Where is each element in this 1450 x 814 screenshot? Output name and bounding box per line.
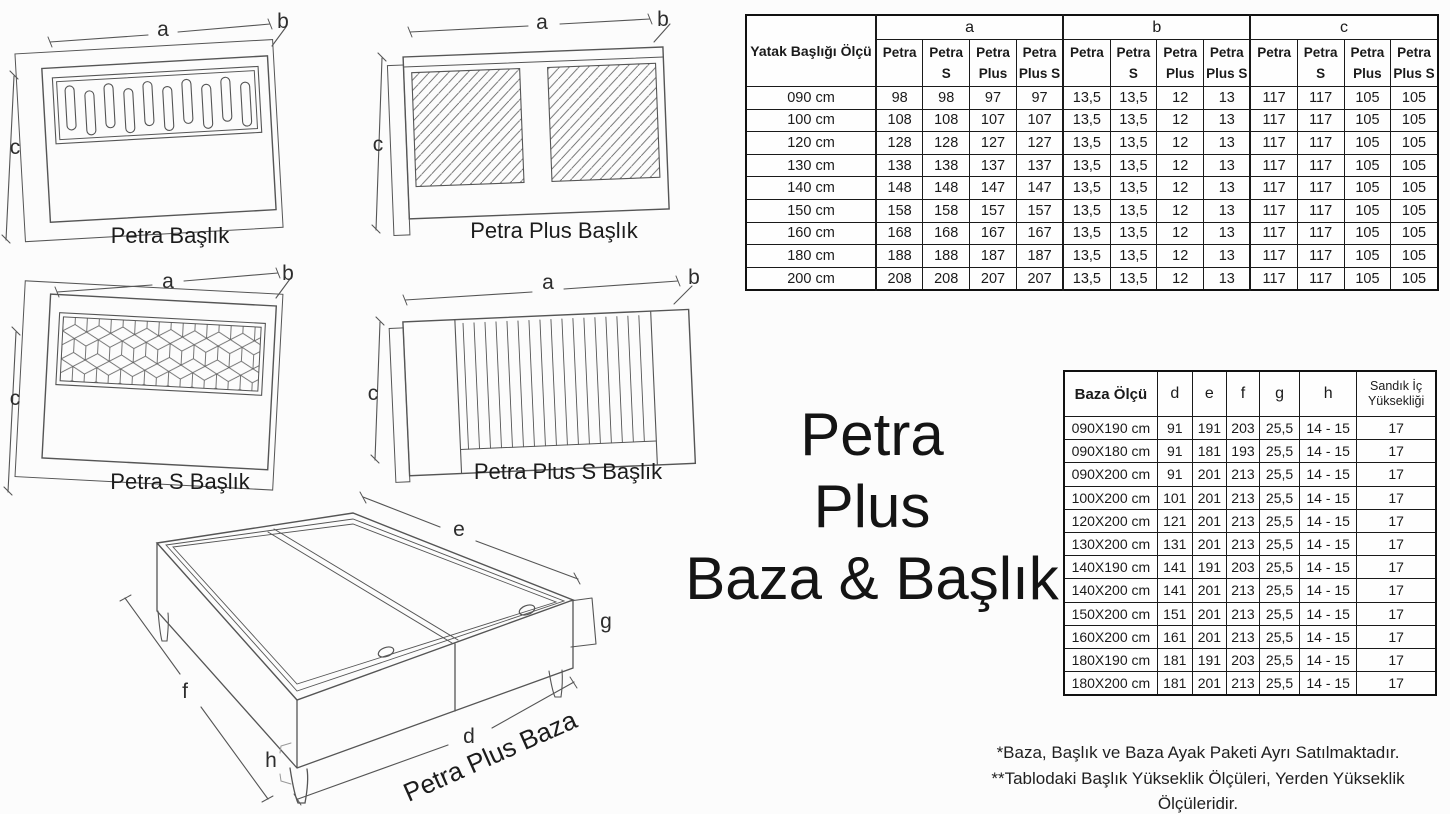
- column-header-line: Plus: [1157, 63, 1203, 84]
- column-header: PetraPlus: [1344, 40, 1391, 87]
- value-cell: 105: [1391, 199, 1438, 222]
- size-cell: 160 cm: [746, 222, 876, 245]
- value-cell: 25,5: [1260, 532, 1300, 555]
- value-cell: 13,5: [1063, 245, 1110, 268]
- value-cell: 25,5: [1260, 625, 1300, 648]
- value-cell: 213: [1226, 463, 1259, 486]
- value-cell: 13,5: [1063, 87, 1110, 110]
- value-cell: 117: [1297, 245, 1344, 268]
- value-cell: 105: [1391, 132, 1438, 155]
- value-cell: 148: [923, 177, 970, 200]
- value-cell: 105: [1344, 132, 1391, 155]
- value-cell: 17: [1357, 486, 1436, 509]
- value-cell: 13: [1204, 199, 1251, 222]
- value-cell: 12: [1157, 109, 1204, 132]
- dim-label-f-baza: f: [182, 681, 188, 703]
- value-cell: 13: [1204, 109, 1251, 132]
- petra-baslik-drawing: [2, 19, 286, 243]
- value-cell: 13,5: [1063, 154, 1110, 177]
- value-cell: 13,5: [1063, 132, 1110, 155]
- size-cell: 160X200 cm: [1064, 625, 1157, 648]
- value-cell: 167: [1016, 222, 1063, 245]
- petra-plus-baslik-drawing: [372, 14, 670, 235]
- value-cell: 25,5: [1260, 648, 1300, 671]
- baza-column-header: f: [1226, 371, 1259, 417]
- baza-row: 150X200 cm15120121325,514 - 1517: [1064, 602, 1436, 625]
- value-cell: 201: [1192, 602, 1226, 625]
- product-title-line2: Plus: [685, 471, 1059, 543]
- value-cell: 25,5: [1260, 579, 1300, 602]
- dim-label-c-petra-s: c: [10, 388, 21, 410]
- value-cell: 138: [923, 154, 970, 177]
- value-cell: 25,5: [1260, 417, 1300, 440]
- value-cell: 105: [1391, 154, 1438, 177]
- value-cell: 188: [876, 245, 923, 268]
- value-cell: 105: [1391, 267, 1438, 290]
- value-cell: 17: [1357, 556, 1436, 579]
- value-cell: 17: [1357, 509, 1436, 532]
- value-cell: 158: [923, 199, 970, 222]
- group-header: a: [876, 15, 1063, 40]
- dim-label-b-petra-plus-s: b: [688, 267, 700, 289]
- column-header-line: Petra: [970, 42, 1016, 63]
- value-cell: 105: [1344, 199, 1391, 222]
- value-cell: 105: [1391, 109, 1438, 132]
- value-cell: 117: [1250, 132, 1297, 155]
- value-cell: 191: [1192, 556, 1226, 579]
- headboard-row: 150 cm15815815715713,513,512131171171051…: [746, 199, 1438, 222]
- baza-row: 130X200 cm13120121325,514 - 1517: [1064, 532, 1436, 555]
- baza-row: 140X190 cm14119120325,514 - 1517: [1064, 556, 1436, 579]
- value-cell: 213: [1226, 672, 1259, 696]
- value-cell: 107: [970, 109, 1017, 132]
- baza-column-header: g: [1260, 371, 1300, 417]
- value-cell: 12: [1157, 87, 1204, 110]
- value-cell: 14 - 15: [1300, 648, 1357, 671]
- value-cell: 181: [1192, 440, 1226, 463]
- value-cell: 117: [1250, 222, 1297, 245]
- headboard-row: 200 cm20820820720713,513,512131171171051…: [746, 267, 1438, 290]
- value-cell: 13,5: [1110, 199, 1157, 222]
- footnote-2: **Tablodaki Başlık Yükseklik Ölçüleri, Y…: [952, 766, 1444, 814]
- column-header-line: S: [923, 63, 969, 84]
- petra-plus-baza-drawing: [120, 492, 596, 805]
- column-header: PetraPlus S: [1391, 40, 1438, 87]
- value-cell: 203: [1226, 648, 1259, 671]
- baza-column-header: Baza Ölçü: [1064, 371, 1157, 417]
- dim-label-a-petra-plus: a: [536, 12, 548, 34]
- value-cell: 13: [1204, 154, 1251, 177]
- value-cell: 12: [1157, 199, 1204, 222]
- value-cell: 168: [923, 222, 970, 245]
- size-cell: 140 cm: [746, 177, 876, 200]
- value-cell: 138: [876, 154, 923, 177]
- column-header-line: Petra: [1204, 42, 1249, 63]
- headboard-row: 130 cm13813813713713,513,512131171171051…: [746, 154, 1438, 177]
- column-header-line: Petra: [923, 42, 969, 63]
- dim-label-b-petra-s: b: [282, 263, 294, 285]
- value-cell: 117: [1250, 109, 1297, 132]
- value-cell: 157: [1016, 199, 1063, 222]
- value-cell: 13,5: [1063, 267, 1110, 290]
- baza-row: 180X190 cm18119120325,514 - 1517: [1064, 648, 1436, 671]
- dim-label-a-petra-s: a: [162, 271, 174, 293]
- column-header-line: Petra: [1251, 42, 1296, 63]
- size-cell: 100 cm: [746, 109, 876, 132]
- value-cell: 207: [1016, 267, 1063, 290]
- column-header: Petra: [1063, 40, 1110, 87]
- value-cell: 105: [1391, 222, 1438, 245]
- value-cell: 25,5: [1260, 486, 1300, 509]
- value-cell: 13: [1204, 87, 1251, 110]
- value-cell: 193: [1226, 440, 1259, 463]
- value-cell: 13: [1204, 177, 1251, 200]
- value-cell: 91: [1157, 440, 1192, 463]
- baza-row: 140X200 cm14120121325,514 - 1517: [1064, 579, 1436, 602]
- dim-label-a-petra-plus-s: a: [542, 272, 554, 294]
- column-header: PetraPlus: [970, 40, 1017, 87]
- value-cell: 13,5: [1063, 109, 1110, 132]
- value-cell: 157: [970, 199, 1017, 222]
- product-title: Petra Plus Baza & Başlık: [685, 399, 1059, 615]
- value-cell: 17: [1357, 672, 1436, 696]
- value-cell: 191: [1192, 417, 1226, 440]
- value-cell: 12: [1157, 245, 1204, 268]
- value-cell: 148: [876, 177, 923, 200]
- size-cell: 090X180 cm: [1064, 440, 1157, 463]
- value-cell: 14 - 15: [1300, 625, 1357, 648]
- value-cell: 97: [970, 87, 1017, 110]
- column-header: Petra: [1250, 40, 1297, 87]
- size-cell: 140X200 cm: [1064, 579, 1157, 602]
- value-cell: 213: [1226, 509, 1259, 532]
- value-cell: 147: [970, 177, 1017, 200]
- value-cell: 13,5: [1063, 222, 1110, 245]
- spec-sheet: a b c Petra Başlık a b c Petra Plus Başl…: [0, 0, 1450, 814]
- value-cell: 13,5: [1063, 177, 1110, 200]
- value-cell: 14 - 15: [1300, 417, 1357, 440]
- value-cell: 17: [1357, 625, 1436, 648]
- value-cell: 117: [1250, 177, 1297, 200]
- value-cell: 14 - 15: [1300, 486, 1357, 509]
- value-cell: 187: [970, 245, 1017, 268]
- value-cell: 208: [923, 267, 970, 290]
- value-cell: 105: [1344, 245, 1391, 268]
- value-cell: 188: [923, 245, 970, 268]
- dim-label-d-baza: d: [463, 726, 475, 748]
- baza-column-header: Sandık İç Yüksekliği: [1357, 371, 1436, 417]
- value-cell: 13,5: [1110, 132, 1157, 155]
- size-cell: 200 cm: [746, 267, 876, 290]
- value-cell: 105: [1391, 87, 1438, 110]
- column-header-line: [877, 63, 922, 84]
- value-cell: 13,5: [1110, 267, 1157, 290]
- value-cell: 13: [1204, 267, 1251, 290]
- column-header-line: Plus S: [1204, 63, 1249, 84]
- value-cell: 98: [876, 87, 923, 110]
- value-cell: 17: [1357, 579, 1436, 602]
- value-cell: 161: [1157, 625, 1192, 648]
- baza-column-header: e: [1192, 371, 1226, 417]
- headboard-row: 180 cm18818818718713,513,512131171171051…: [746, 245, 1438, 268]
- value-cell: 14 - 15: [1300, 672, 1357, 696]
- size-cell: 100X200 cm: [1064, 486, 1157, 509]
- value-cell: 108: [876, 109, 923, 132]
- size-cell: 140X190 cm: [1064, 556, 1157, 579]
- value-cell: 91: [1157, 417, 1192, 440]
- value-cell: 117: [1297, 177, 1344, 200]
- headboard-row: 090 cm9898979713,513,51213117117105105: [746, 87, 1438, 110]
- value-cell: 105: [1391, 245, 1438, 268]
- value-cell: 201: [1192, 463, 1226, 486]
- value-cell: 128: [923, 132, 970, 155]
- value-cell: 25,5: [1260, 672, 1300, 696]
- column-header-line: Petra: [1157, 42, 1203, 63]
- group-header: b: [1063, 15, 1250, 40]
- footnote-1: *Baza, Başlık ve Baza Ayak Paketi Ayrı S…: [952, 740, 1444, 766]
- value-cell: 13,5: [1110, 222, 1157, 245]
- value-cell: 25,5: [1260, 556, 1300, 579]
- value-cell: 201: [1192, 532, 1226, 555]
- value-cell: 213: [1226, 532, 1259, 555]
- value-cell: 137: [1016, 154, 1063, 177]
- value-cell: 121: [1157, 509, 1192, 532]
- dim-label-c-petra-plus: c: [373, 134, 384, 156]
- value-cell: 17: [1357, 532, 1436, 555]
- value-cell: 25,5: [1260, 602, 1300, 625]
- value-cell: 117: [1297, 109, 1344, 132]
- value-cell: 12: [1157, 132, 1204, 155]
- value-cell: 12: [1157, 177, 1204, 200]
- value-cell: 158: [876, 199, 923, 222]
- column-header-line: Plus: [1345, 63, 1391, 84]
- value-cell: 13,5: [1110, 87, 1157, 110]
- value-cell: 168: [876, 222, 923, 245]
- value-cell: 127: [1016, 132, 1063, 155]
- size-cell: 120X200 cm: [1064, 509, 1157, 532]
- value-cell: 17: [1357, 463, 1436, 486]
- value-cell: 203: [1226, 556, 1259, 579]
- value-cell: 117: [1297, 199, 1344, 222]
- column-header-line: Petra: [877, 42, 922, 63]
- product-title-line1: Petra: [685, 399, 1059, 471]
- size-cell: 180X200 cm: [1064, 672, 1157, 696]
- column-header-line: Petra: [1017, 42, 1062, 63]
- dim-label-g-baza: g: [600, 611, 612, 633]
- size-cell: 130 cm: [746, 154, 876, 177]
- dim-label-c-petra: c: [10, 137, 21, 159]
- value-cell: 13: [1204, 245, 1251, 268]
- column-header-line: [1251, 63, 1296, 84]
- baza-row: 180X200 cm18120121325,514 - 1517: [1064, 672, 1436, 696]
- corner-header: Yatak Başlığı Ölçü: [746, 15, 876, 87]
- caption-petra-plus-s-baslik: Petra Plus S Başlık: [474, 460, 662, 484]
- value-cell: 105: [1344, 267, 1391, 290]
- caption-petra-s-baslik: Petra S Başlık: [110, 470, 249, 494]
- value-cell: 13: [1204, 132, 1251, 155]
- column-header-line: Petra: [1111, 42, 1157, 63]
- dim-label-b-petra: b: [277, 11, 289, 33]
- value-cell: 17: [1357, 417, 1436, 440]
- value-cell: 127: [970, 132, 1017, 155]
- headboard-row: 120 cm12812812712713,513,512131171171051…: [746, 132, 1438, 155]
- value-cell: 151: [1157, 602, 1192, 625]
- value-cell: 12: [1157, 154, 1204, 177]
- value-cell: 201: [1192, 486, 1226, 509]
- column-header-line: Plus: [970, 63, 1016, 84]
- column-header-line: Petra: [1345, 42, 1391, 63]
- size-cell: 180 cm: [746, 245, 876, 268]
- value-cell: 181: [1157, 672, 1192, 696]
- value-cell: 213: [1226, 579, 1259, 602]
- baza-row: 160X200 cm16120121325,514 - 1517: [1064, 625, 1436, 648]
- value-cell: 137: [970, 154, 1017, 177]
- value-cell: 207: [970, 267, 1017, 290]
- dim-label-c-petra-plus-s: c: [368, 383, 379, 405]
- value-cell: 17: [1357, 648, 1436, 671]
- column-header-line: Plus S: [1017, 63, 1062, 84]
- value-cell: 13,5: [1110, 109, 1157, 132]
- column-header: PetraS: [923, 40, 970, 87]
- value-cell: 107: [1016, 109, 1063, 132]
- column-header: PetraPlus S: [1016, 40, 1063, 87]
- value-cell: 131: [1157, 532, 1192, 555]
- baza-column-header: h: [1300, 371, 1357, 417]
- value-cell: 105: [1344, 222, 1391, 245]
- baza-row: 120X200 cm12120121325,514 - 1517: [1064, 509, 1436, 532]
- value-cell: 117: [1297, 132, 1344, 155]
- value-cell: 17: [1357, 440, 1436, 463]
- size-cell: 090X190 cm: [1064, 417, 1157, 440]
- dim-label-b-petra-plus: b: [657, 9, 669, 31]
- value-cell: 105: [1344, 154, 1391, 177]
- value-cell: 117: [1297, 222, 1344, 245]
- value-cell: 14 - 15: [1300, 579, 1357, 602]
- column-header: PetraS: [1297, 40, 1344, 87]
- baza-row: 100X200 cm10120121325,514 - 1517: [1064, 486, 1436, 509]
- column-header: PetraPlus: [1157, 40, 1204, 87]
- value-cell: 105: [1391, 177, 1438, 200]
- value-cell: 201: [1192, 672, 1226, 696]
- value-cell: 14 - 15: [1300, 602, 1357, 625]
- value-cell: 117: [1250, 245, 1297, 268]
- value-cell: 14 - 15: [1300, 463, 1357, 486]
- value-cell: 13: [1204, 222, 1251, 245]
- value-cell: 213: [1226, 486, 1259, 509]
- value-cell: 14 - 15: [1300, 440, 1357, 463]
- value-cell: 12: [1157, 267, 1204, 290]
- value-cell: 101: [1157, 486, 1192, 509]
- baza-table: Baza ÖlçüdefghSandık İç Yüksekliği090X19…: [1063, 370, 1437, 696]
- headboard-row: 100 cm10810810710713,513,512131171171051…: [746, 109, 1438, 132]
- column-header-line: S: [1111, 63, 1157, 84]
- group-header: c: [1250, 15, 1437, 40]
- headboard-table: Yatak Başlığı ÖlçüabcPetraPetraSPetraPlu…: [745, 14, 1439, 291]
- value-cell: 12: [1157, 222, 1204, 245]
- size-cell: 150 cm: [746, 199, 876, 222]
- petra-plus-s-baslik-drawing: [371, 276, 696, 482]
- column-header-line: [1064, 63, 1109, 84]
- column-header: Petra: [876, 40, 923, 87]
- value-cell: 17: [1357, 602, 1436, 625]
- headboard-row: 160 cm16816816716713,513,512131171171051…: [746, 222, 1438, 245]
- value-cell: 141: [1157, 556, 1192, 579]
- value-cell: 213: [1226, 625, 1259, 648]
- column-header: PetraPlus S: [1204, 40, 1251, 87]
- size-cell: 090X200 cm: [1064, 463, 1157, 486]
- value-cell: 117: [1297, 87, 1344, 110]
- column-header-line: Petra: [1298, 42, 1344, 63]
- value-cell: 203: [1226, 417, 1259, 440]
- value-cell: 97: [1016, 87, 1063, 110]
- value-cell: 13,5: [1110, 245, 1157, 268]
- value-cell: 25,5: [1260, 509, 1300, 532]
- baza-row: 090X190 cm9119120325,514 - 1517: [1064, 417, 1436, 440]
- value-cell: 13,5: [1110, 154, 1157, 177]
- value-cell: 208: [876, 267, 923, 290]
- value-cell: 105: [1344, 87, 1391, 110]
- value-cell: 98: [923, 87, 970, 110]
- value-cell: 14 - 15: [1300, 532, 1357, 555]
- value-cell: 181: [1157, 648, 1192, 671]
- value-cell: 201: [1192, 579, 1226, 602]
- column-header: PetraS: [1110, 40, 1157, 87]
- value-cell: 117: [1250, 199, 1297, 222]
- value-cell: 117: [1250, 267, 1297, 290]
- value-cell: 108: [923, 109, 970, 132]
- baza-row: 090X200 cm9120121325,514 - 1517: [1064, 463, 1436, 486]
- value-cell: 117: [1297, 154, 1344, 177]
- column-header-line: S: [1298, 63, 1344, 84]
- value-cell: 13,5: [1110, 177, 1157, 200]
- footnotes: *Baza, Başlık ve Baza Ayak Paketi Ayrı S…: [952, 740, 1444, 814]
- size-cell: 090 cm: [746, 87, 876, 110]
- value-cell: 25,5: [1260, 463, 1300, 486]
- baza-row: 090X180 cm9118119325,514 - 1517: [1064, 440, 1436, 463]
- caption-petra-baslik: Petra Başlık: [111, 224, 230, 248]
- size-cell: 180X190 cm: [1064, 648, 1157, 671]
- value-cell: 167: [970, 222, 1017, 245]
- caption-petra-plus-baslik: Petra Plus Başlık: [470, 219, 638, 243]
- column-header-line: Petra: [1064, 42, 1109, 63]
- headboard-row: 140 cm14814814714713,513,512131171171051…: [746, 177, 1438, 200]
- value-cell: 117: [1297, 267, 1344, 290]
- column-header-line: Petra: [1391, 42, 1436, 63]
- value-cell: 141: [1157, 579, 1192, 602]
- value-cell: 117: [1250, 87, 1297, 110]
- dim-label-a-petra: a: [157, 19, 169, 41]
- value-cell: 105: [1344, 177, 1391, 200]
- petra-s-baslik-drawing: [4, 268, 290, 495]
- value-cell: 117: [1250, 154, 1297, 177]
- value-cell: 14 - 15: [1300, 509, 1357, 532]
- dim-label-h-baza: h: [265, 750, 277, 772]
- value-cell: 105: [1344, 109, 1391, 132]
- value-cell: 213: [1226, 602, 1259, 625]
- value-cell: 201: [1192, 625, 1226, 648]
- product-title-line3: Baza & Başlık: [685, 543, 1059, 615]
- size-cell: 130X200 cm: [1064, 532, 1157, 555]
- value-cell: 13,5: [1063, 199, 1110, 222]
- value-cell: 187: [1016, 245, 1063, 268]
- column-header-line: Plus S: [1391, 63, 1436, 84]
- value-cell: 14 - 15: [1300, 556, 1357, 579]
- size-cell: 150X200 cm: [1064, 602, 1157, 625]
- value-cell: 201: [1192, 509, 1226, 532]
- baza-column-header: d: [1157, 371, 1192, 417]
- value-cell: 91: [1157, 463, 1192, 486]
- value-cell: 191: [1192, 648, 1226, 671]
